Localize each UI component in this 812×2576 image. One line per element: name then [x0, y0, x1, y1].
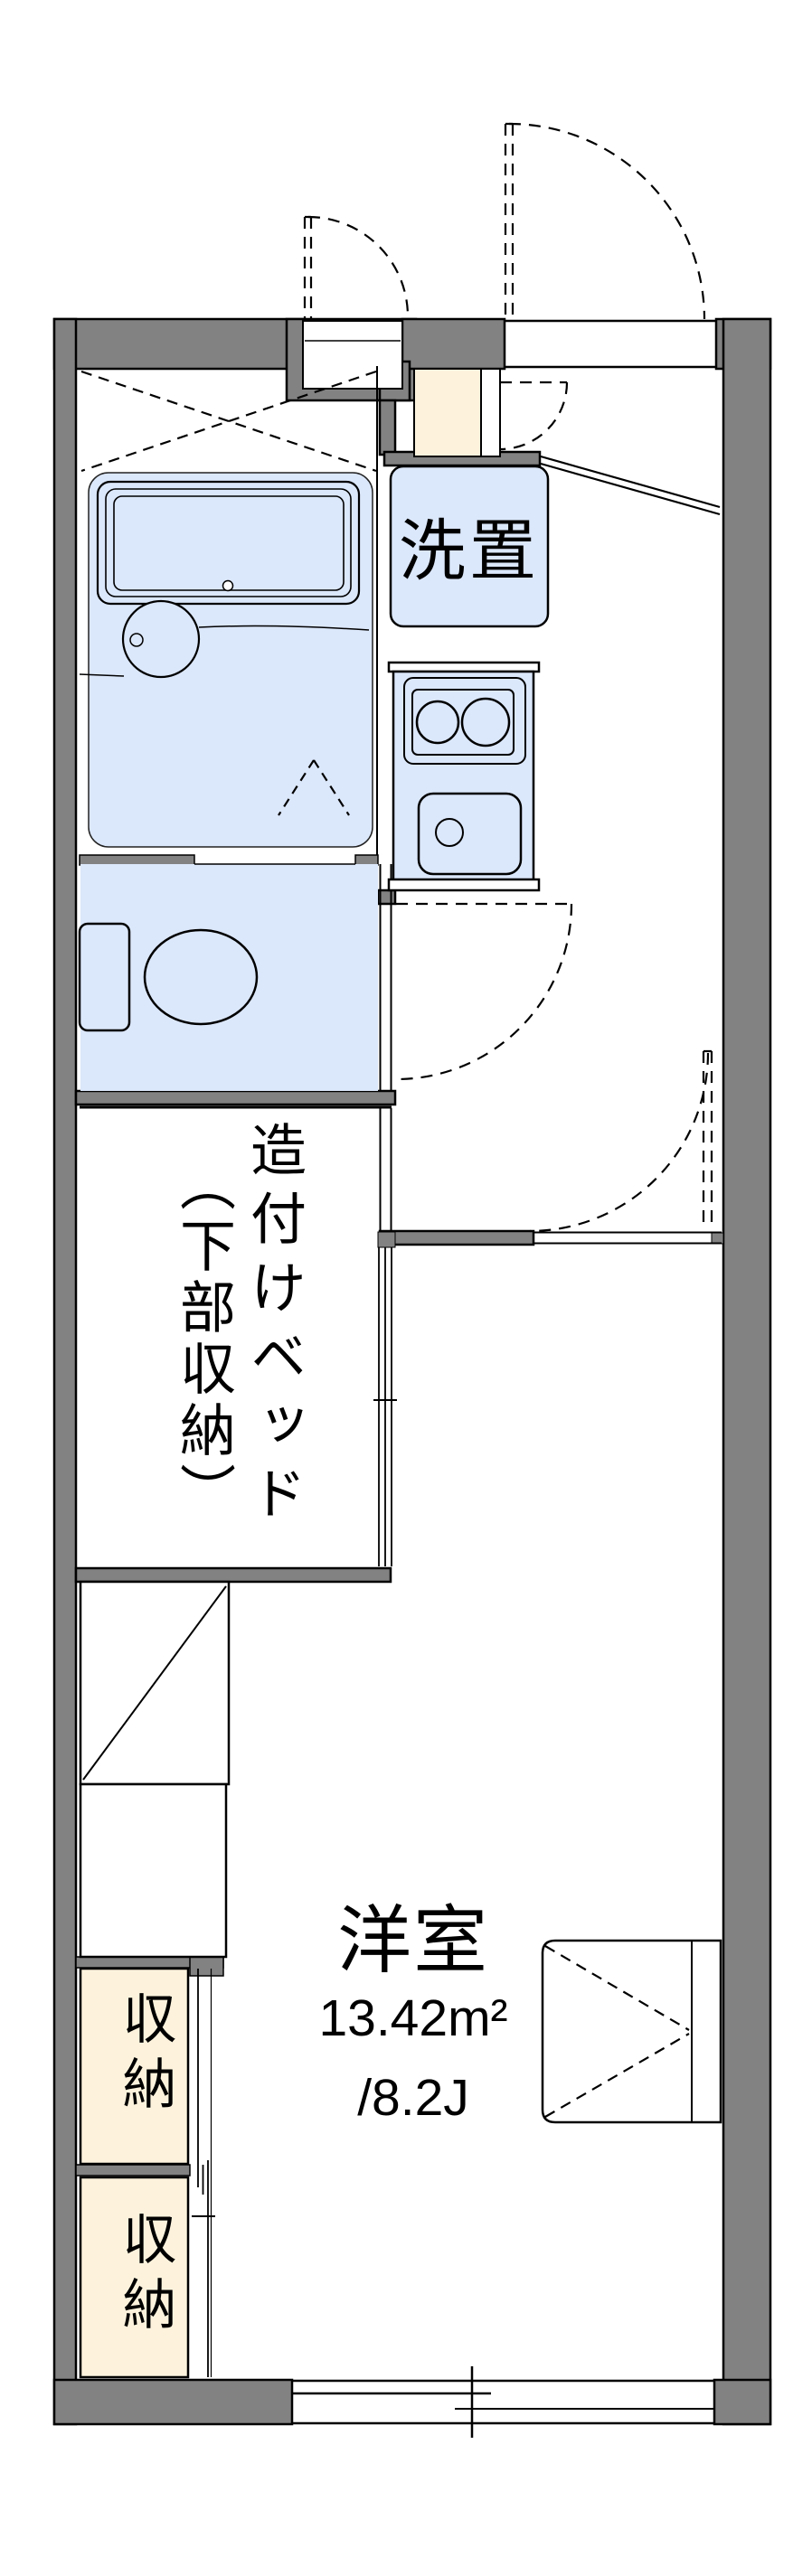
floor-plan-drawing: [0, 0, 812, 2576]
toilet-bowl: [145, 930, 257, 1024]
genkan-side-strip: [481, 369, 500, 456]
western-room-label: 洋室: [282, 1880, 544, 1988]
bedroom-threshold: [533, 1233, 722, 1244]
wall-toilet-top-right: [355, 855, 378, 865]
kitchen: [389, 663, 539, 890]
toilet-tank: [80, 924, 129, 1030]
sink-drain: [436, 819, 463, 846]
step-edge-b: [541, 464, 720, 514]
bottom-window: [292, 2366, 714, 2438]
genkan-floor: [414, 369, 481, 456]
wall-left: [54, 319, 76, 2424]
cabinet-door-arc: [500, 382, 567, 449]
meterbox-door-arc: [308, 217, 408, 316]
bathtub-drain: [223, 581, 233, 591]
genkan-step-edge: [541, 456, 720, 514]
closet-sliding-door: [192, 1969, 215, 2377]
washer-space-label: 洗置: [391, 497, 548, 594]
bathtub: [98, 482, 359, 604]
wash-basin: [123, 601, 199, 677]
basin-faucet: [130, 634, 143, 646]
entry-door-arc: [509, 124, 704, 319]
room-area-jo: /8.2J: [273, 2068, 553, 2128]
wall-top-mid: [402, 319, 505, 369]
wall-door-stub-right: [712, 1233, 723, 1244]
entry-threshold: [505, 321, 716, 367]
bedroom-window: [543, 1941, 721, 2122]
room-area-sqm: 13.42m²: [273, 1988, 553, 2048]
storage-lower-label: 収納: [106, 2211, 184, 2341]
wall-right: [723, 319, 770, 2424]
toilet-room: [80, 864, 378, 1091]
wall-bedroom-door: [380, 1231, 533, 1245]
stove-burner-left: [417, 701, 458, 743]
bedroom-door-arc: [530, 1053, 708, 1231]
built-in-bed-label: 造付けベッド: [231, 1121, 313, 1533]
wall-top-left: [54, 319, 305, 369]
meterbox-door-leaf: [305, 217, 311, 319]
desk-area: [80, 1582, 229, 1957]
stove-burner-right: [462, 699, 509, 746]
wall-genkan-strip: [380, 400, 395, 455]
wall-toilet-top-left: [80, 855, 194, 865]
kitchen-counter-bottom: [389, 879, 539, 890]
wall-toilet-bottom: [76, 1091, 395, 1105]
desk-box-lower: [80, 1784, 226, 1957]
wall-desk-stub: [190, 1957, 223, 1976]
kitchen-counter-top: [389, 663, 539, 672]
wall-bed-stub: [378, 1232, 395, 1247]
toilet-door-arc: [396, 904, 571, 1079]
bathroom-cross-mark: [81, 371, 376, 471]
kitchen-sink: [419, 794, 521, 874]
wall-bottom-left: [54, 2380, 292, 2424]
wall-bed-bottom: [76, 1568, 391, 1582]
window-box: [543, 1941, 721, 2122]
floor-plan: 洗置 造付けベッド （下部収納） 洋室 13.42m² /8.2J 収納 収納: [0, 0, 812, 2576]
wall-closet-divider: [76, 2165, 190, 2176]
bathroom: [80, 371, 376, 847]
entry-door-leaf: [505, 124, 513, 319]
step-edge-a: [541, 456, 720, 507]
storage-upper-label: 収納: [106, 1990, 184, 2120]
bed-storage-note-label: （下部収納）: [161, 1155, 242, 1524]
bedroom-door-leaf: [703, 1051, 712, 1229]
wall-bottom-right: [714, 2380, 770, 2424]
